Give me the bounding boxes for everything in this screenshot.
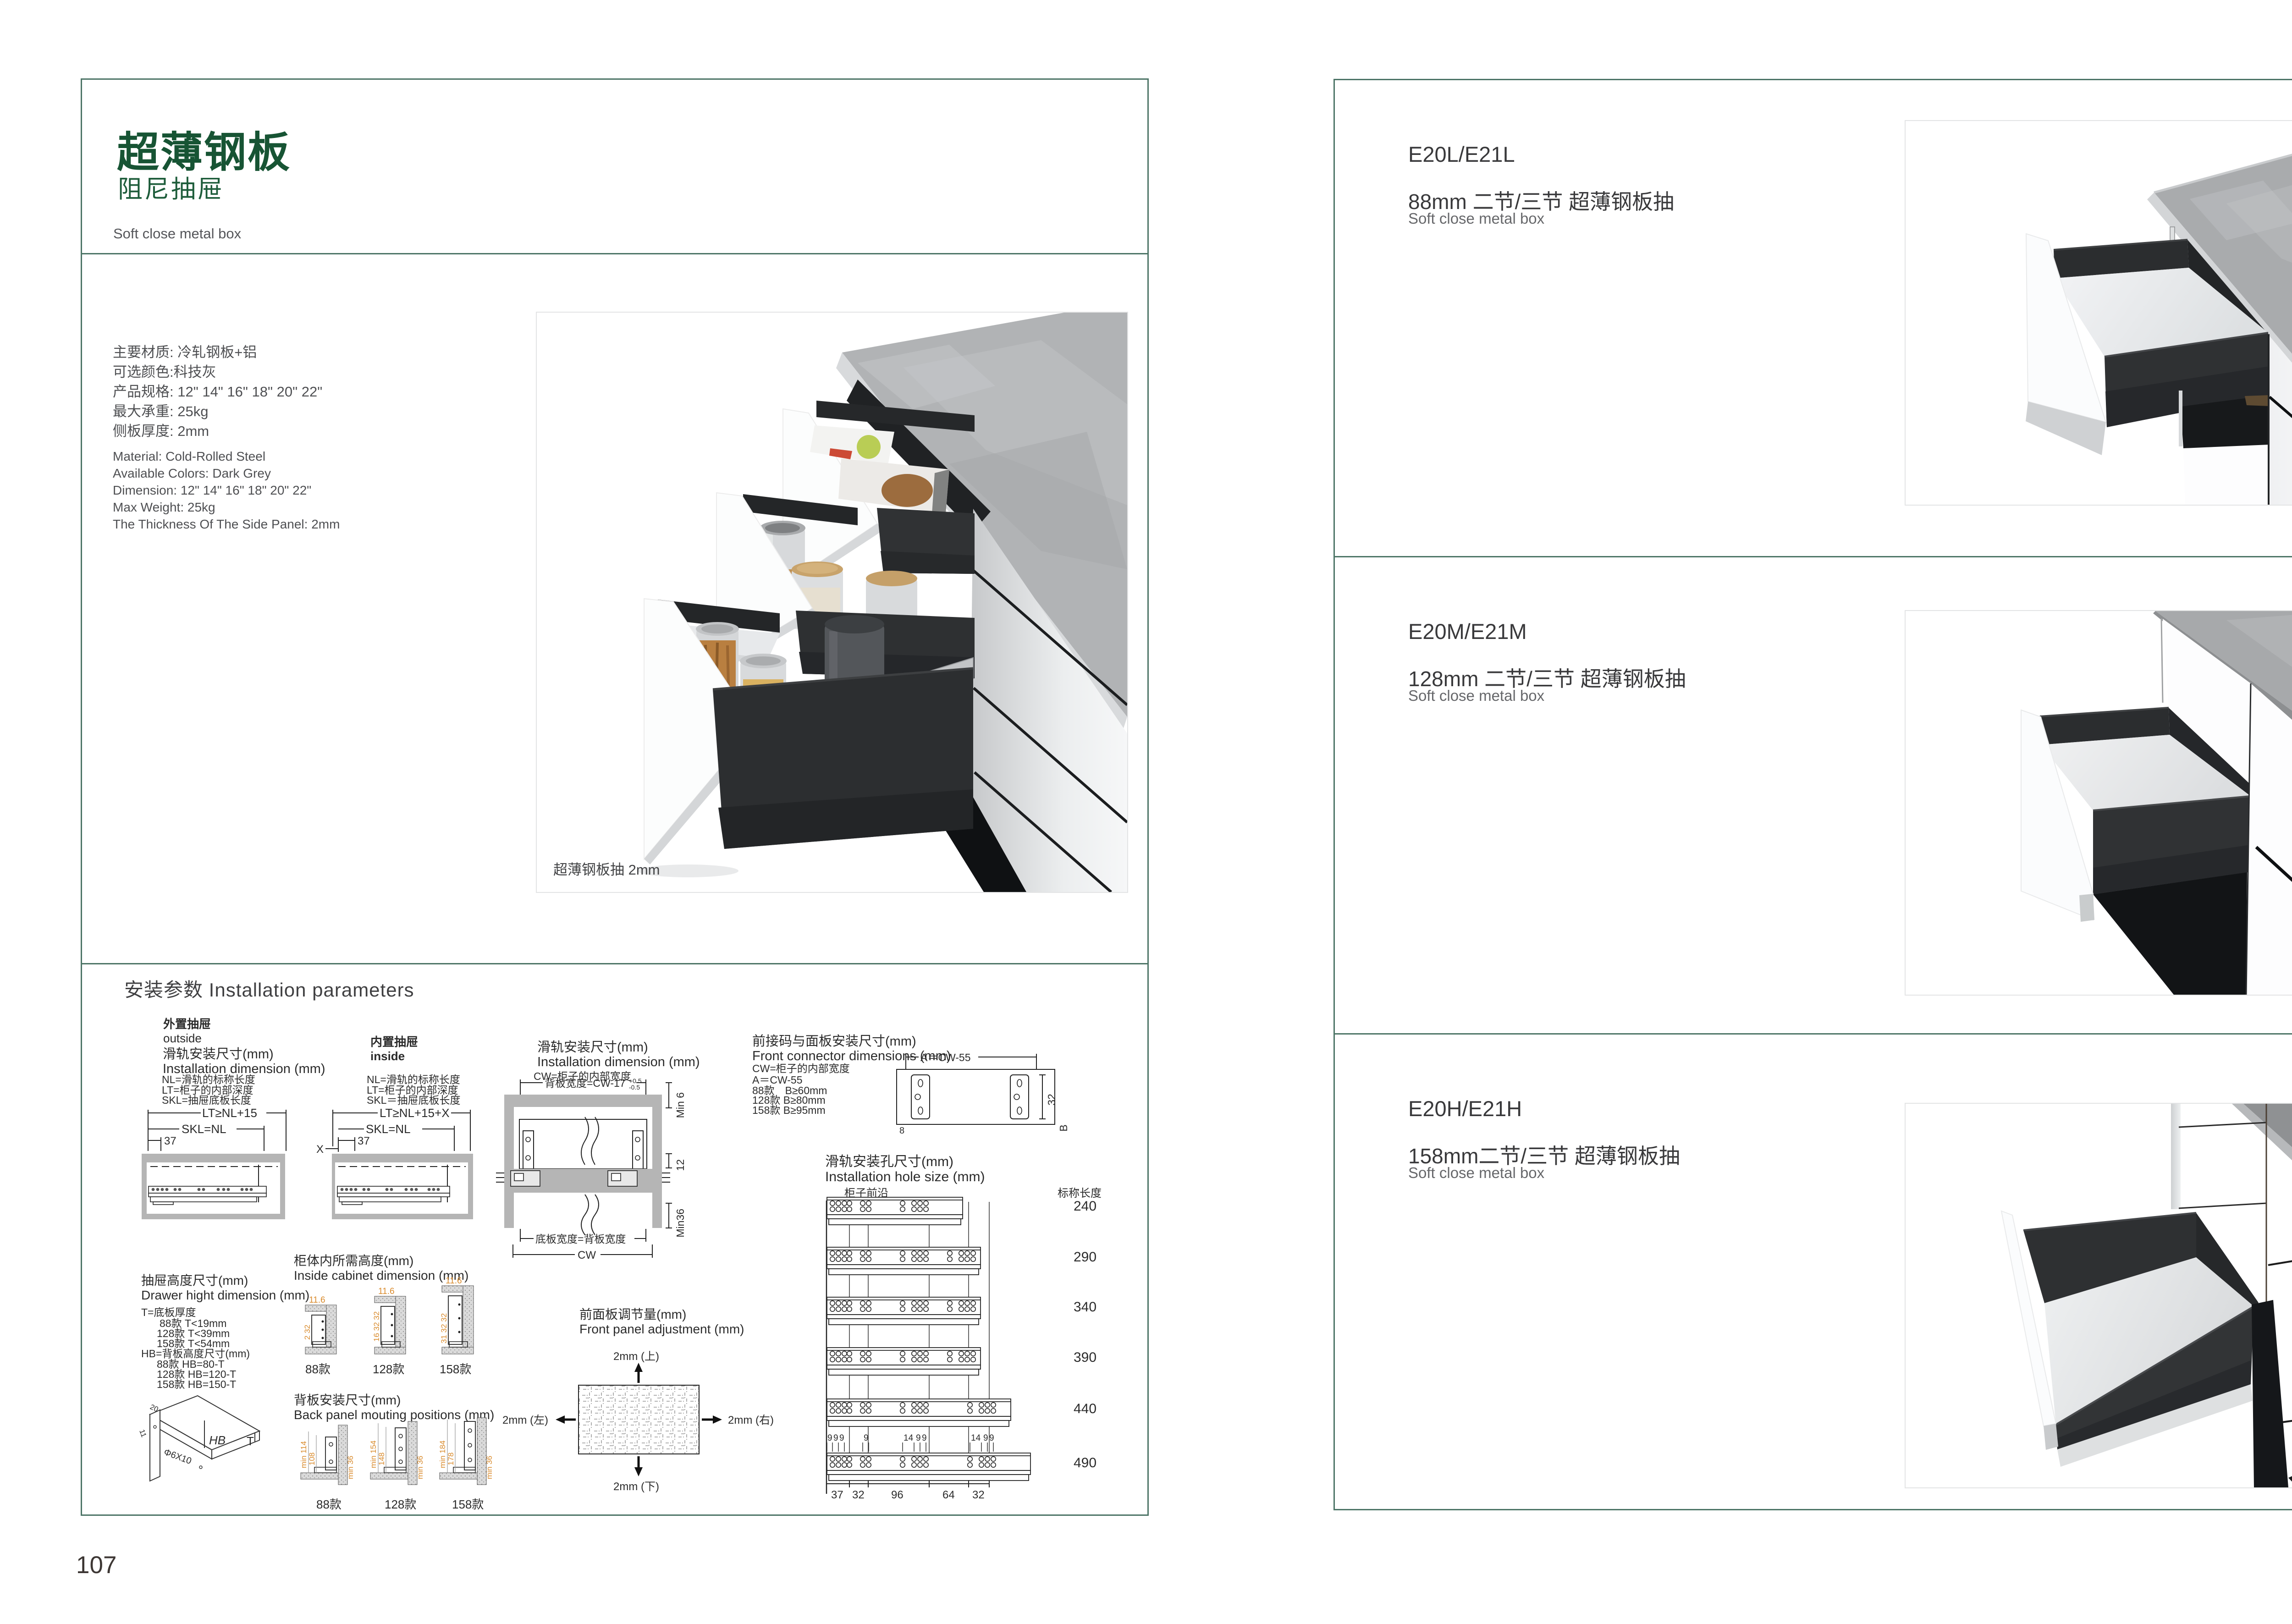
svg-text:9: 9: [922, 1433, 927, 1443]
svg-text:Drawer hight dimension (mm): Drawer hight dimension (mm): [141, 1288, 309, 1302]
svg-text:158款: 158款: [440, 1362, 471, 1376]
svg-text:88款: 88款: [316, 1497, 342, 1511]
svg-text:9: 9: [864, 1433, 869, 1443]
svg-text:37: 37: [358, 1135, 370, 1147]
svg-text:2mm (上): 2mm (上): [613, 1350, 659, 1363]
svg-text:-0.5: -0.5: [629, 1084, 640, 1091]
svg-text:390: 390: [1074, 1350, 1096, 1365]
svg-text:290: 290: [1074, 1250, 1096, 1265]
svg-text:11.6: 11.6: [309, 1295, 325, 1305]
svg-text:88款: 88款: [305, 1362, 331, 1376]
svg-text:背板宽度=CW-17: 背板宽度=CW-17: [545, 1077, 626, 1089]
svg-text:SKL=NL: SKL=NL: [182, 1122, 226, 1136]
svg-text:148: 148: [377, 1453, 386, 1465]
svg-text:9: 9: [827, 1433, 832, 1443]
svg-text:抽屉高度尺寸(mm): 抽屉高度尺寸(mm): [141, 1273, 248, 1288]
svg-text:Installation dimension (mm): Installation dimension (mm): [537, 1055, 700, 1069]
svg-text:标称长度: 标称长度: [1058, 1187, 1102, 1200]
svg-text:LT≥NL+15: LT≥NL+15: [202, 1106, 257, 1120]
svg-text:2 32: 2 32: [303, 1325, 312, 1340]
svg-text:64: 64: [942, 1489, 955, 1501]
svg-text:128款: 128款: [385, 1497, 416, 1511]
svg-text:16 32 32: 16 32 32: [372, 1311, 381, 1342]
svg-text:底板宽度=背板宽度: 底板宽度=背板宽度: [535, 1233, 626, 1245]
svg-text:HB: HB: [209, 1433, 226, 1447]
svg-text:2mm (左): 2mm (左): [502, 1414, 548, 1426]
svg-text:2mm (下): 2mm (下): [613, 1481, 659, 1493]
svg-text:min 114: min 114: [299, 1441, 308, 1468]
svg-text:T=底板厚度: T=底板厚度: [141, 1306, 196, 1318]
svg-text:14: 14: [904, 1433, 914, 1443]
svg-text:min 184: min 184: [438, 1441, 447, 1468]
svg-text:min 36: min 36: [485, 1456, 494, 1479]
svg-text:440: 440: [1074, 1401, 1096, 1416]
svg-text:背板安装尺寸(mm): 背板安装尺寸(mm): [294, 1393, 401, 1407]
svg-text:158款 B≥95mm: 158款 B≥95mm: [752, 1104, 826, 1116]
svg-text:11: 11: [138, 1429, 148, 1439]
svg-text:A＝CW-55: A＝CW-55: [920, 1051, 971, 1063]
svg-text:T: T: [247, 1434, 254, 1448]
svg-text:108: 108: [308, 1453, 316, 1465]
svg-text:Installation hole size (mm): Installation hole size (mm): [825, 1169, 985, 1184]
svg-text:37: 37: [831, 1489, 843, 1501]
svg-text:SKL=抽屉底板长度: SKL=抽屉底板长度: [162, 1094, 251, 1106]
svg-text:490: 490: [1074, 1455, 1096, 1470]
svg-text:9: 9: [839, 1433, 844, 1443]
svg-text:8: 8: [899, 1126, 904, 1136]
svg-text:SKL=NL: SKL=NL: [366, 1122, 411, 1136]
svg-text:14: 14: [971, 1433, 981, 1443]
svg-text:158款 HB=150-T: 158款 HB=150-T: [157, 1378, 236, 1390]
svg-text:11.6: 11.6: [378, 1287, 395, 1296]
svg-text:Back panel mouting positions (: Back panel mouting positions (mm): [294, 1408, 494, 1422]
svg-text:Inside cabinet dimension (mm): Inside cabinet dimension (mm): [294, 1268, 468, 1283]
svg-text:9: 9: [916, 1433, 921, 1443]
svg-text:柜体内所需高度(mm): 柜体内所需高度(mm): [294, 1254, 413, 1268]
svg-text:96: 96: [891, 1489, 904, 1501]
svg-text:Front panel adjustment (mm): Front panel adjustment (mm): [579, 1322, 744, 1336]
svg-text:前接码与面板安装尺寸(mm): 前接码与面板安装尺寸(mm): [752, 1034, 916, 1049]
svg-text:9: 9: [983, 1433, 988, 1443]
svg-text:32: 32: [852, 1489, 865, 1501]
svg-text:Min36: Min36: [674, 1209, 686, 1238]
svg-text:X: X: [316, 1143, 324, 1156]
svg-text:inside: inside: [370, 1049, 405, 1063]
svg-text:前面板调节量(mm): 前面板调节量(mm): [579, 1307, 686, 1321]
svg-text:11.6: 11.6: [446, 1276, 462, 1286]
svg-text:滑轨安装尺寸(mm): 滑轨安装尺寸(mm): [163, 1046, 274, 1062]
svg-text:37: 37: [164, 1135, 176, 1147]
svg-text:32: 32: [972, 1489, 985, 1501]
svg-text:滑轨安装尺寸(mm): 滑轨安装尺寸(mm): [537, 1040, 648, 1055]
svg-text:B: B: [1058, 1124, 1069, 1131]
svg-text:外置抽屉: 外置抽屉: [163, 1017, 211, 1031]
svg-text:9: 9: [989, 1433, 994, 1443]
svg-text:Φ6X10: Φ6X10: [162, 1447, 193, 1466]
svg-text:min 154: min 154: [369, 1441, 378, 1468]
svg-text:LT≥NL+15+X: LT≥NL+15+X: [380, 1106, 450, 1120]
svg-text:12: 12: [674, 1159, 686, 1171]
svg-text:340: 340: [1074, 1299, 1096, 1315]
svg-text:2mm (右): 2mm (右): [728, 1414, 774, 1426]
svg-text:128款: 128款: [373, 1362, 404, 1376]
svg-text:min 36: min 36: [416, 1456, 424, 1479]
svg-text:SKL＝抽屉底板长度: SKL＝抽屉底板长度: [367, 1094, 460, 1106]
svg-text:Min 6: Min 6: [674, 1092, 686, 1118]
svg-text:CW: CW: [578, 1249, 596, 1261]
svg-text:outside: outside: [163, 1031, 202, 1045]
svg-text:内置抽屉: 内置抽屉: [370, 1035, 418, 1049]
svg-text:178: 178: [446, 1453, 455, 1465]
svg-text:滑轨安装孔尺寸(mm): 滑轨安装孔尺寸(mm): [825, 1154, 953, 1169]
svg-text:9: 9: [833, 1433, 838, 1443]
svg-text:240: 240: [1074, 1199, 1096, 1214]
svg-text:32: 32: [1046, 1094, 1058, 1106]
svg-text:CW=柜子的内部宽度: CW=柜子的内部宽度: [752, 1062, 850, 1074]
svg-text:31 32 32: 31 32 32: [440, 1313, 448, 1343]
svg-text:158款: 158款: [452, 1497, 484, 1511]
svg-text:min 36: min 36: [346, 1456, 355, 1479]
